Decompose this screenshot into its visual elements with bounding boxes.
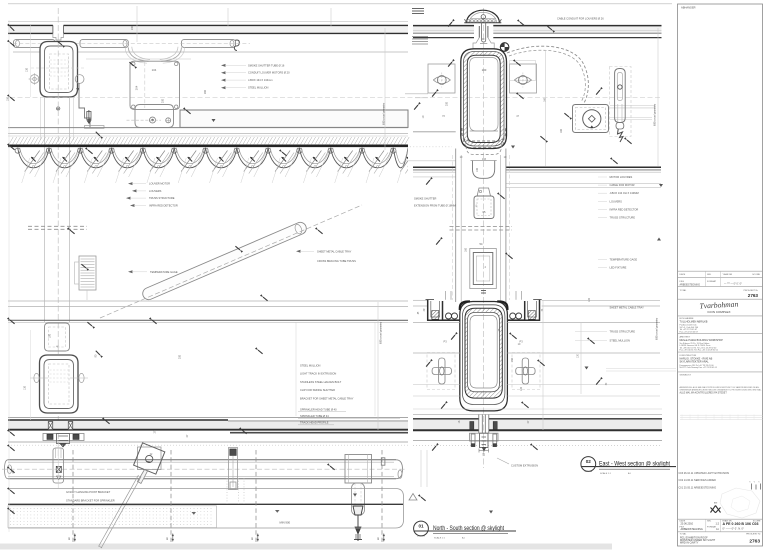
svg-text:LOUVERS: LOUVERS xyxy=(610,199,623,203)
svg-text:LIGHT TRACK IN EXTRUSION: LIGHT TRACK IN EXTRUSION xyxy=(300,372,336,376)
svg-text:01: 01 xyxy=(418,524,424,529)
svg-text:120: 120 xyxy=(520,386,523,391)
svg-text:FORMAT: FORMAT xyxy=(707,525,717,528)
svg-text:160: 160 xyxy=(544,97,547,102)
svg-text:YEAR SR: YEAR SR xyxy=(723,273,733,276)
svg-text:120: 120 xyxy=(588,297,591,302)
svg-text:LED FIXTURE: LED FIXTURE xyxy=(610,266,627,270)
svg-text:TRACK HEAD PROFILE: TRACK HEAD PROFILE xyxy=(300,421,329,425)
svg-text:600 to roof geometry: 600 to roof geometry xyxy=(380,321,383,344)
svg-text:— *** — 0° 0'. 0°: — *** — 0° 0'. 0° xyxy=(724,283,742,286)
svg-text:SCALE 1:1: SCALE 1:1 xyxy=(600,472,612,475)
svg-text:INFRA RED DETECTOR: INFRA RED DETECTOR xyxy=(149,203,178,207)
svg-text:d: d xyxy=(750,482,752,483)
svg-text:STAINLESS STEEL HALFEN BOLT: STAINLESS STEEL HALFEN BOLT xyxy=(300,380,342,384)
svg-text:DATE: DATE xyxy=(680,273,686,276)
svg-text:ABHANGER: ABHANGER xyxy=(681,6,696,10)
svg-text:20.06.2010: 20.06.2010 xyxy=(681,523,694,526)
svg-text:5: 5 xyxy=(166,537,168,541)
svg-text:100: 100 xyxy=(482,68,487,72)
svg-text:PROSJEKT Nr: PROSJEKT Nr xyxy=(746,533,761,536)
svg-text:C02 14.06.11 SERVICES ADDED: C02 14.06.11 SERVICES ADDED xyxy=(679,479,717,482)
svg-text:ICON COMPLEX: ICON COMPLEX xyxy=(707,310,730,314)
svg-text:TRUSS STRUCTURE: TRUSS STRUCTURE xyxy=(610,329,636,333)
svg-text:SCORE: SCORE xyxy=(752,274,760,276)
svg-text:N-0277 Oslo Norway Fax +47: N-0277 Oslo Norway Fax +47 23 28 41 01 xyxy=(680,367,718,369)
svg-text:200: 200 xyxy=(162,98,165,103)
svg-text:TEMPERATURE GAGE: TEMPERATURE GAGE xyxy=(610,257,638,261)
svg-text:2763: 2763 xyxy=(749,539,760,545)
svg-text:ARBEIDSTEGNING: ARBEIDSTEGNING xyxy=(680,283,701,286)
svg-text:160: 160 xyxy=(465,247,468,252)
svg-text:CONDUIT LOUVER MOTORS Ø 20: CONDUIT LOUVER MOTORS Ø 20 xyxy=(248,71,290,75)
svg-text:J-BOX 134 OH X 134MM: J-BOX 134 OH X 134MM xyxy=(610,191,639,195)
svg-text:CUSTOM EXTRUSION: CUSTOM EXTRUSION xyxy=(511,464,538,468)
svg-text:d: d xyxy=(759,482,761,483)
svg-text:FILE: FILE xyxy=(680,281,685,283)
svg-text:TOTAL: TOTAL xyxy=(680,289,688,292)
svg-text:MRD IN CAVITY: MRD IN CAVITY xyxy=(680,542,699,545)
svg-text:SIGNELIST: SIGNELIST xyxy=(680,375,692,377)
svg-text:STANDARD BRACKET FOR SPRINKLER: STANDARD BRACKET FOR SPRINKLER xyxy=(66,498,115,502)
svg-text:SKYLARKITEKTER ARAL: SKYLARKITEKTER ARAL xyxy=(680,360,710,363)
svg-text:LOUVER MOTOR: LOUVER MOTOR xyxy=(149,182,170,186)
svg-text:East - West section @ skylight: East - West section @ skylight xyxy=(599,460,670,467)
svg-text:02: 02 xyxy=(586,459,592,464)
svg-text:PROSJEKT Nr: PROSJEKT Nr xyxy=(744,289,759,292)
svg-text:d: d xyxy=(754,482,756,483)
svg-text:Michele Politzki BUILDING WOR: Michele Politzki BUILDING WORKSHOP xyxy=(680,339,724,342)
svg-text:26 b' 09: 26 b' 09 xyxy=(584,471,592,473)
svg-text:150: 150 xyxy=(511,357,514,362)
svg-text:North - South section @ skylig: North - South section @ skylight xyxy=(433,525,504,532)
svg-text:CLIP FOR SMOKE SHUTTER: CLIP FOR SMOKE SHUTTER xyxy=(300,388,335,392)
svg-text:STEEL MULLION: STEEL MULLION xyxy=(610,338,630,342)
svg-text:CROSS BRACING TUBE TRUSS: CROSS BRACING TUBE TRUSS xyxy=(317,259,356,263)
svg-text:100: 100 xyxy=(476,167,479,172)
svg-text:TOTAL: TOTAL xyxy=(680,533,688,536)
svg-text:104: 104 xyxy=(135,85,139,90)
svg-text:LOUVERS: LOUVERS xyxy=(149,189,162,193)
svg-text:104: 104 xyxy=(152,68,157,72)
svg-text:CABLE FOR MOTOR: CABLE FOR MOTOR xyxy=(610,183,635,187)
svg-text:TRUSS STRUCTURE: TRUSS STRUCTURE xyxy=(610,216,636,220)
svg-text:26 b' 09: 26 b' 09 xyxy=(417,536,425,538)
svg-text:TRUSS STRUCTURE: TRUSS STRUCTURE xyxy=(149,196,175,200)
svg-text:180: 180 xyxy=(560,128,563,133)
svg-text:0° —— 0° 0'. N. 0°: 0° —— 0° 0'. N. 0° xyxy=(723,527,744,531)
svg-text:SPRINKLER TUBE Ø 34: SPRINKLER TUBE Ø 34 xyxy=(300,414,329,418)
svg-text:GRENSENDE ARBEIDER. AVVIK MELD: GRENSENDE ARBEIDER. AVVIK MELDES OMGAEND… xyxy=(680,388,763,391)
svg-text:STEEL MULLION: STEEL MULLION xyxy=(300,363,320,367)
svg-text:MIN 900: MIN 900 xyxy=(280,521,291,525)
svg-text:BRACKET FOR SHEET METAL CABLE: BRACKET FOR SHEET METAL CABLE TRAY xyxy=(300,397,354,401)
svg-text:130: 130 xyxy=(24,385,27,390)
svg-text:STEEL MULLION: STEEL MULLION xyxy=(248,86,268,90)
svg-text:CABLE CONDUIT FOR LOUVERS Ø 2: CABLE CONDUIT FOR LOUVERS Ø 26 xyxy=(557,17,604,21)
svg-text:Fax +39 010 61 715 Fax +33 1: Fax +39 010 61 715 Fax +33 1 44 28 32 01 xyxy=(680,350,719,352)
svg-text:C01 20.05.11 ARBEIDSTEGNING: C01 20.05.11 ARBEIDSTEGNING xyxy=(679,487,717,490)
svg-text:Fax +47 22 23 45 67: Fax +47 22 23 45 67 xyxy=(680,331,699,333)
svg-text:5: 5 xyxy=(251,537,253,541)
svg-text:190: 190 xyxy=(49,333,52,338)
svg-text:5: 5 xyxy=(377,537,379,541)
svg-text:SPRINKLER HEAD TUBE Ø 40: SPRINKLER HEAD TUBE Ø 40 xyxy=(300,407,337,411)
svg-text:200: 200 xyxy=(446,101,449,106)
svg-text:SHEET METAL CABLE TRAY: SHEET METAL CABLE TRAY xyxy=(610,305,645,309)
svg-text:J-BOX 134 X 134mm: J-BOX 134 X 134mm xyxy=(248,78,273,82)
svg-text:1:2: 1:2 xyxy=(716,522,720,525)
svg-text:MOTOR LOUVRES: MOTOR LOUVRES xyxy=(610,175,633,179)
svg-text:SHEET METAL CABLE TRAY: SHEET METAL CABLE TRAY xyxy=(317,249,352,253)
svg-text:BIM: BIM xyxy=(714,503,718,505)
svg-text:ALLE MAL MA KONTROLLERES PA ST: ALLE MAL MA KONTROLLERES PA STEDET xyxy=(680,391,728,394)
svg-text:ARBEIDSTEGNING: ARBEIDSTEGNING xyxy=(681,528,703,531)
svg-text:200: 200 xyxy=(131,25,134,30)
svg-text:TEMPERATURE GAGE: TEMPERATURE GAGE xyxy=(150,270,178,274)
svg-text:SMOKE SHUTTER: SMOKE SHUTTER xyxy=(414,196,436,200)
svg-text:600 to roof geometry: 600 to roof geometry xyxy=(654,103,657,126)
svg-text:130: 130 xyxy=(26,67,29,72)
svg-text:EXTENSION FROM TUBE Ø 16MM: EXTENSION FROM TUBE Ø 16MM xyxy=(414,204,456,208)
svg-text:INFRA RED DETECTOR: INFRA RED DETECTOR xyxy=(610,207,639,211)
svg-text:200: 200 xyxy=(179,354,182,359)
svg-text:A FE 0 260 B 106 C03: A FE 0 260 B 106 C03 xyxy=(723,522,759,526)
svg-text:103: 103 xyxy=(482,158,487,161)
svg-text:5: 5 xyxy=(68,537,70,541)
svg-text:2763: 2763 xyxy=(748,293,759,298)
svg-text:600 to roof geometry: 600 to roof geometry xyxy=(656,317,659,340)
svg-text:TULLHOLMEN ABRILKB: TULLHOLMEN ABRILKB xyxy=(680,320,708,323)
svg-text:P3: P3 xyxy=(444,340,448,344)
svg-text:SMOKE SHUTTER TUBE Ø 16: SMOKE SHUTTER TUBE Ø 16 xyxy=(248,63,285,67)
svg-text:280: 280 xyxy=(204,89,207,94)
svg-text:GX100Y HANGING POINT BRACKET: GX100Y HANGING POINT BRACKET xyxy=(66,490,111,494)
svg-text:SCALE 1:1: SCALE 1:1 xyxy=(434,537,446,540)
svg-text:FORMAT: FORMAT xyxy=(707,280,717,283)
svg-text:C03 26.10.11 UPDATED LIGHT E: C03 26.10.11 UPDATED LIGHT EXTRUSION xyxy=(679,472,730,475)
